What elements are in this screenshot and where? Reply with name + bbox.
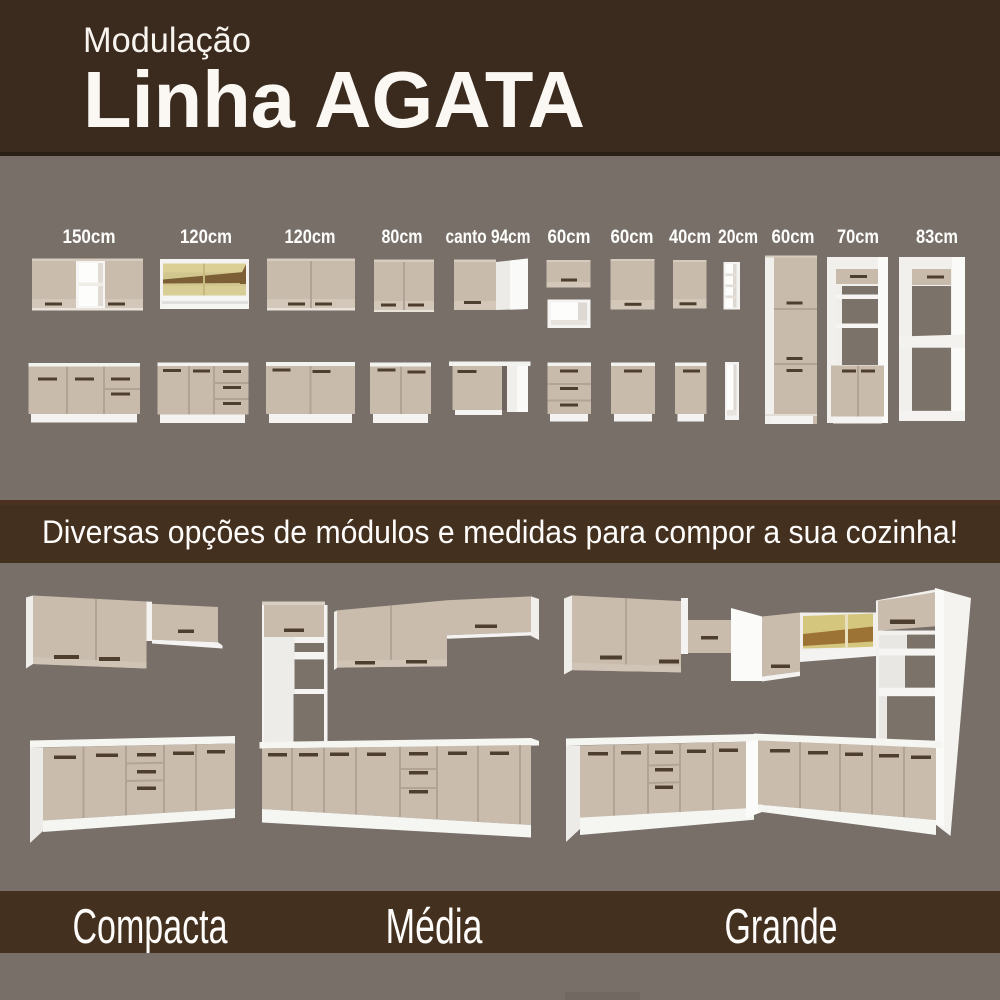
svg-text:83cm: 83cm <box>916 226 958 248</box>
svg-text:60cm: 60cm <box>611 226 654 248</box>
svg-text:Grande: Grande <box>725 900 838 954</box>
svg-text:canto 94cm: canto 94cm <box>446 226 531 248</box>
svg-text:20cm: 20cm <box>718 226 758 248</box>
svg-text:70cm: 70cm <box>837 226 879 248</box>
svg-text:Linha AGATA: Linha AGATA <box>83 55 585 144</box>
svg-text:80cm: 80cm <box>382 226 423 248</box>
svg-text:60cm: 60cm <box>548 226 591 248</box>
svg-text:120cm: 120cm <box>180 226 232 248</box>
svg-text:Compacta: Compacta <box>73 900 229 954</box>
svg-text:Diversas opções de módulos e m: Diversas opções de módulos e medidas par… <box>42 514 958 550</box>
svg-text:40cm: 40cm <box>669 226 711 248</box>
svg-text:Média: Média <box>386 900 484 954</box>
svg-text:150cm: 150cm <box>63 226 116 248</box>
svg-text:120cm: 120cm <box>285 226 336 248</box>
svg-text:60cm: 60cm <box>772 226 815 248</box>
